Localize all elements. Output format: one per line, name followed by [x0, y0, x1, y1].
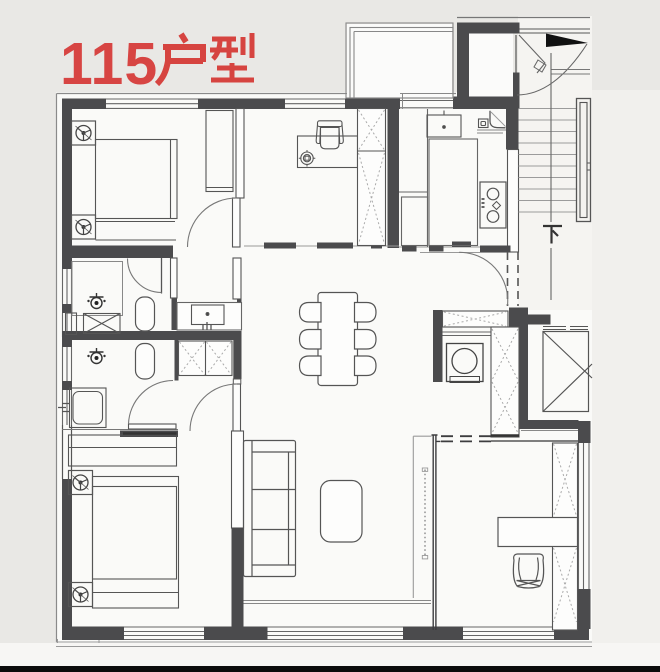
svg-text:115: 115 — [60, 31, 158, 97]
